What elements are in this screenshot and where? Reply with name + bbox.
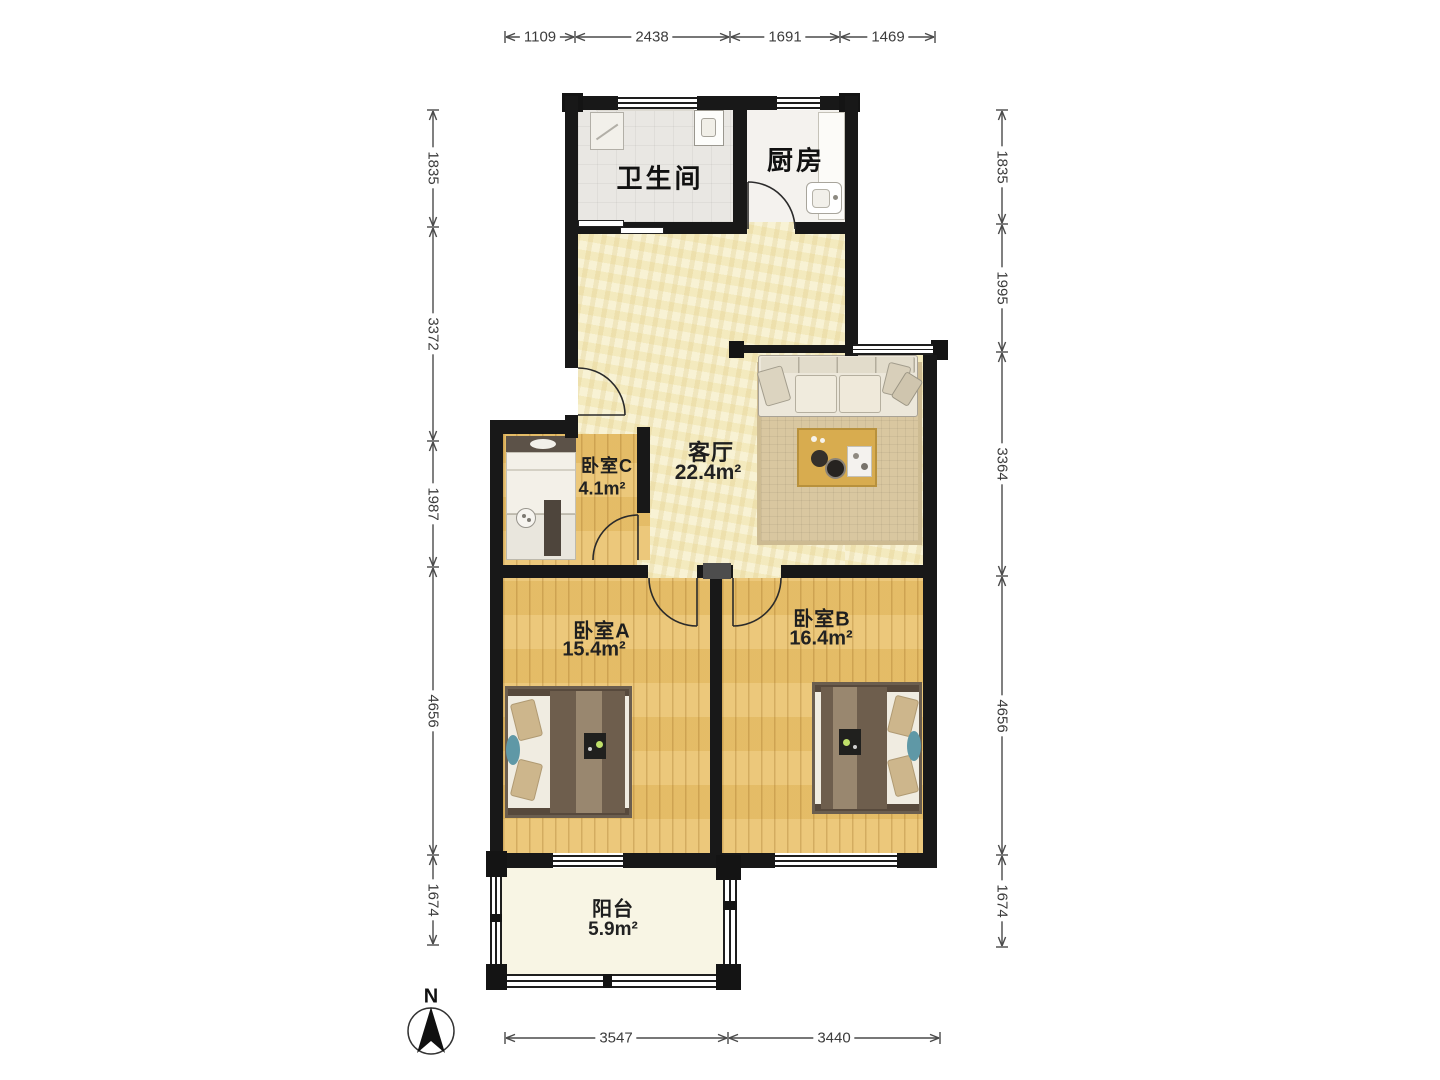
tablet-dot-green	[596, 741, 603, 748]
dim-top-2: 2438	[631, 29, 672, 46]
washbasin	[694, 110, 724, 146]
balcony-mullion-left	[490, 914, 502, 922]
dim-right-1: 1835	[994, 146, 1011, 187]
balcony-mullion-right	[723, 901, 737, 910]
dim-right-4: 4656	[994, 695, 1011, 736]
sink-basin	[812, 189, 830, 208]
wall-a-bottom-2	[623, 853, 710, 868]
dim-bottom-1: 3547	[595, 1030, 636, 1047]
bedroom-c-stool	[516, 508, 536, 528]
balcony-label: 阳台	[592, 893, 634, 922]
floor-plan: 卫生间 厨房 客厅 22.4m² 卧室C 4.1m² 卧室A 15.4m² 卧室…	[0, 0, 1440, 1080]
wall-west	[490, 420, 503, 868]
living-room-window	[853, 344, 933, 355]
table-dot	[820, 438, 825, 443]
dim-left-2: 3372	[425, 313, 442, 354]
bedroom-c-label: 卧室C	[581, 452, 633, 478]
balcony-window-right	[723, 866, 737, 974]
bed-b-cushion-teal	[907, 731, 921, 761]
bed-b	[812, 682, 922, 814]
compass-icon	[408, 1007, 454, 1054]
beam-wall-living	[733, 345, 853, 353]
washer-line	[596, 124, 618, 140]
table-dot	[811, 436, 817, 442]
wall-ab-divider	[710, 578, 722, 855]
sofa	[758, 355, 918, 417]
bed-a-cushion-teal	[506, 735, 520, 765]
kitchen-window	[777, 97, 820, 109]
dim-top-3: 1691	[764, 29, 805, 46]
dim-bottom-2: 3440	[813, 1030, 854, 1047]
wall-right	[923, 355, 937, 868]
bedroom-c-side-table	[544, 500, 561, 556]
stool-dot	[522, 514, 526, 518]
bedroom-c-area: 4.1m²	[578, 479, 625, 500]
bowl	[825, 458, 846, 479]
wall-kitchen-bottom	[795, 222, 858, 234]
bedroom-c-bed	[506, 452, 576, 514]
bed-a-pillow	[510, 759, 543, 802]
sofa-seat-cushion	[839, 375, 881, 413]
tablet-dot	[588, 747, 592, 751]
sofa-seat-cushion	[795, 375, 837, 413]
dim-right-5: 1674	[994, 880, 1011, 921]
bed-a	[505, 686, 632, 818]
wall-mid-left	[490, 565, 648, 578]
balcony-window-bottom	[490, 974, 737, 988]
balcony-mullion-bottom	[603, 974, 612, 988]
balcony-area: 5.9m²	[588, 919, 638, 941]
dim-left-5: 1674	[425, 879, 442, 920]
dim-right-2: 1995	[994, 267, 1011, 308]
bed-c-pillow-line	[507, 469, 575, 471]
tray	[847, 446, 872, 477]
column-grey	[703, 563, 731, 579]
dim-right-3: 3364	[994, 443, 1011, 484]
tray-item	[853, 453, 859, 459]
sliding-door-panel	[578, 220, 624, 227]
dim-top-1: 1109	[520, 29, 560, 46]
tablet-dot-green	[843, 739, 850, 746]
bedroom-b-area: 16.4m²	[789, 628, 852, 651]
bed-a-tablet	[584, 733, 606, 759]
balcony-post-tl	[486, 851, 507, 877]
kitchen-sink	[806, 182, 842, 214]
bedroom-c-doorway-floor	[637, 513, 650, 560]
wall-bedroom-c-top	[490, 420, 578, 434]
faucet-dot	[833, 195, 838, 200]
bed-b-tablet	[839, 729, 861, 755]
living-room-area: 22.4m²	[675, 461, 742, 485]
wall-top-2	[697, 96, 777, 110]
bedroom-c-headboard	[506, 436, 576, 452]
dim-top-4: 1469	[867, 29, 908, 46]
balcony-post-tr	[716, 855, 741, 880]
bathroom-window	[618, 97, 697, 109]
balcony-post-bl	[486, 964, 507, 990]
beam-post	[729, 341, 744, 358]
wall-b-bottom-corner	[897, 853, 937, 868]
wall-bath-kitchen-divider	[733, 110, 747, 228]
wall-bedroom-c-right	[637, 427, 650, 513]
dim-left-3: 1987	[425, 483, 442, 524]
coffee-table	[797, 428, 877, 487]
washing-machine	[590, 112, 624, 150]
sliding-door-panel	[620, 227, 664, 234]
bedroom-a-balcony-door	[553, 855, 623, 867]
dim-left-1: 1835	[425, 147, 442, 188]
balcony-post-br	[716, 964, 741, 990]
bedroom-b-window	[775, 855, 897, 867]
kitchen-label: 厨房	[767, 141, 825, 178]
tablet-dot	[853, 745, 857, 749]
plate	[530, 439, 556, 449]
dim-left-4: 4656	[425, 690, 442, 731]
bathroom-label: 卫生间	[616, 159, 703, 196]
washbasin-bowl	[701, 118, 716, 137]
tray-item	[861, 463, 868, 470]
wall-mid-right	[781, 565, 937, 578]
compass-north-label: N	[424, 986, 438, 1009]
bed-b-pillow	[887, 755, 919, 798]
bedroom-a-area: 15.4m²	[562, 639, 625, 662]
stool-dot	[527, 518, 531, 522]
